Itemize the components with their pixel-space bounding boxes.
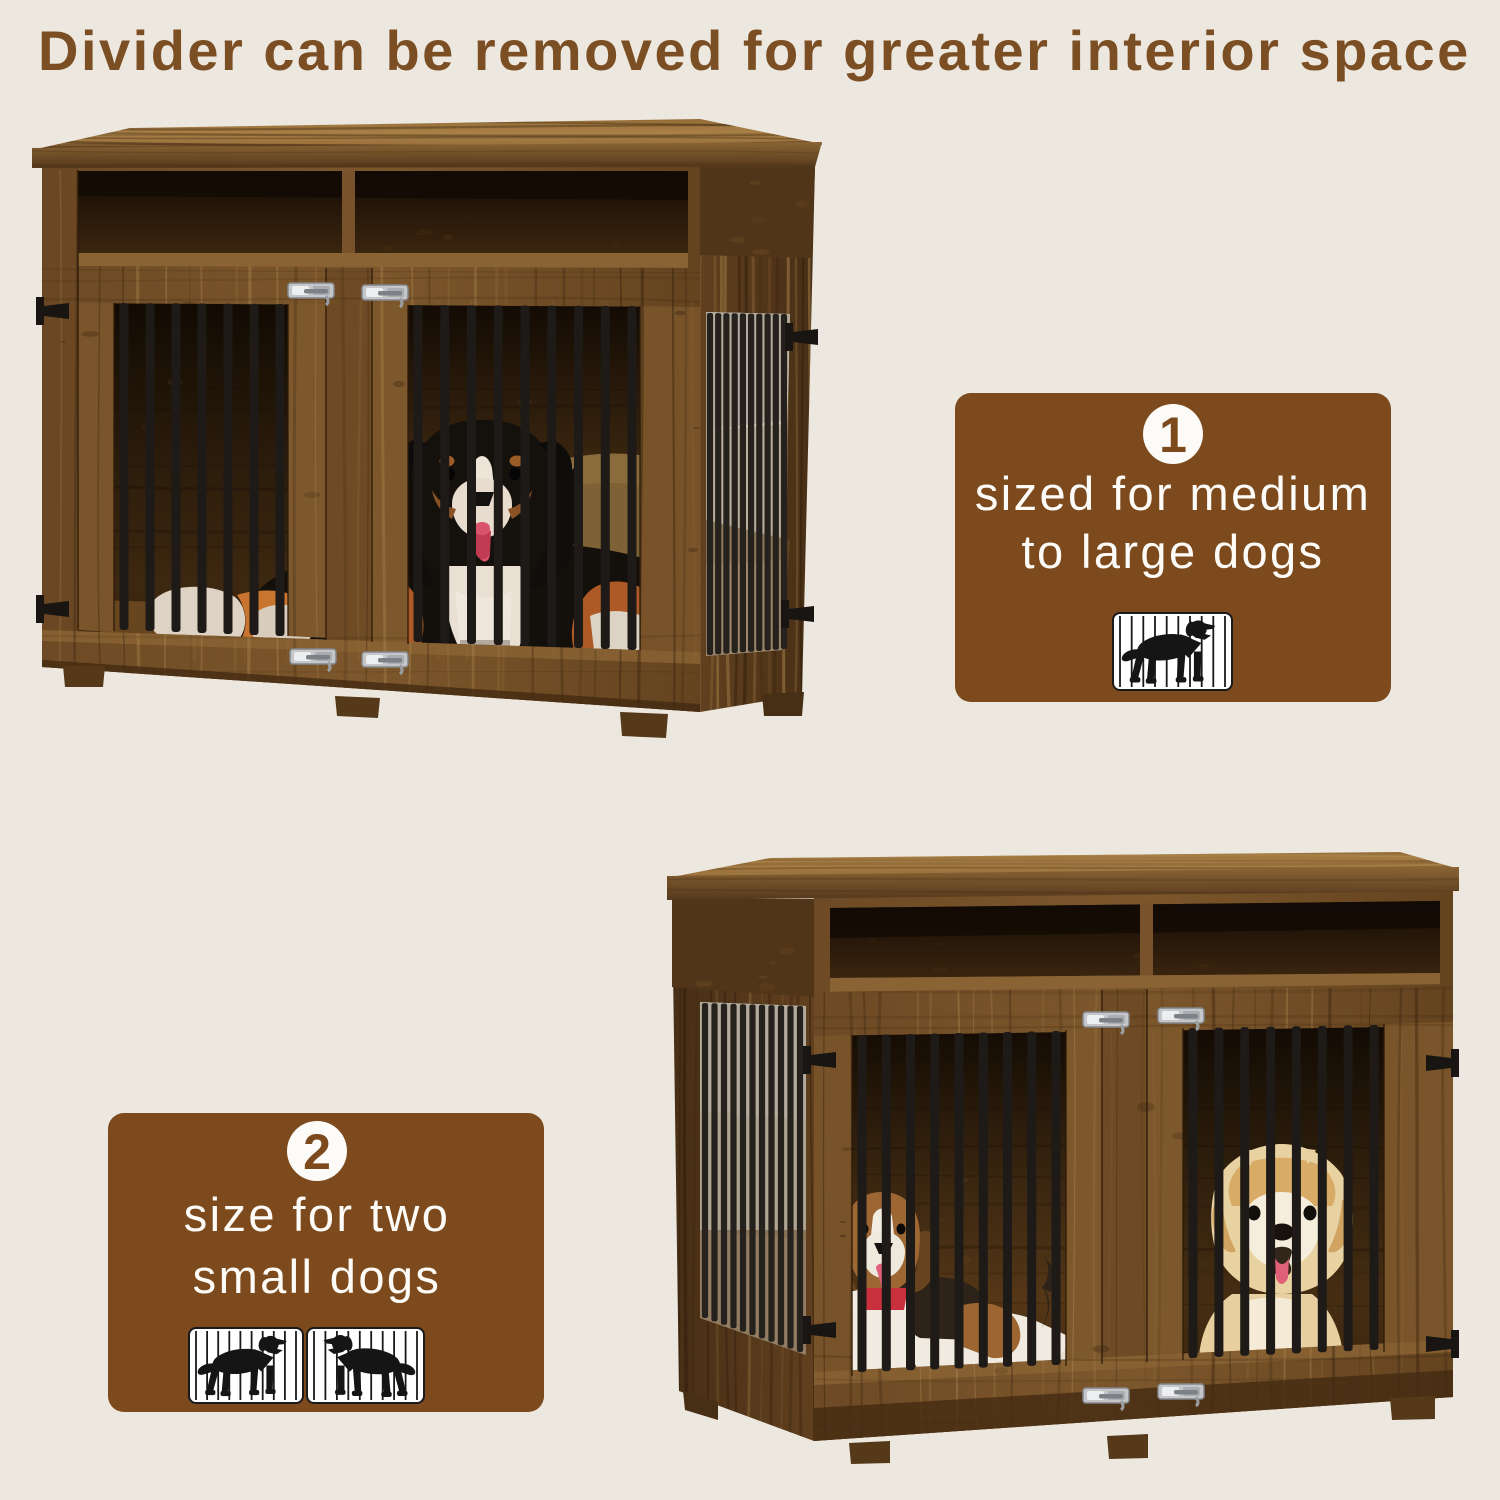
svg-text:to large dogs: to large dogs [1022,525,1325,578]
svg-text:sized for medium: sized for medium [975,467,1371,520]
svg-text:Divider can be removed for gre: Divider can be removed for greater inter… [38,19,1471,82]
svg-text:small dogs: small dogs [193,1250,442,1303]
svg-text:1: 1 [1159,407,1187,463]
svg-text:size for two: size for two [184,1188,451,1241]
svg-text:2: 2 [303,1124,331,1180]
